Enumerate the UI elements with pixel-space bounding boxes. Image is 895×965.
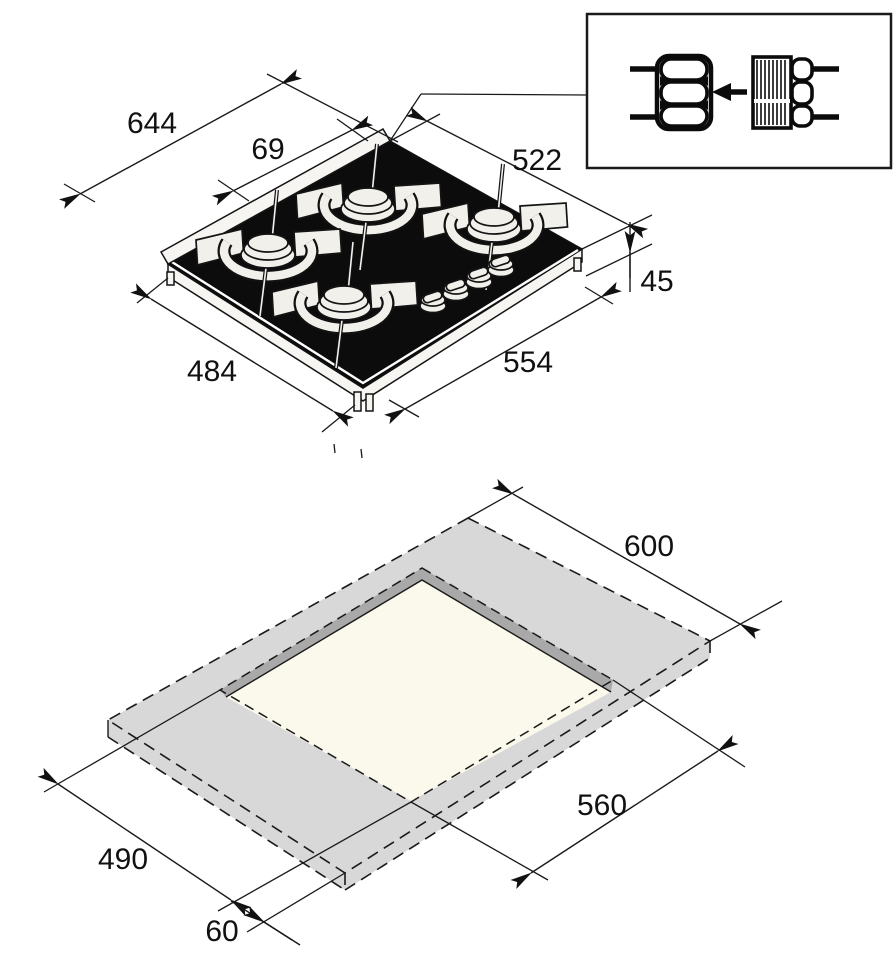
dim-label-overall-width: 644	[127, 107, 177, 140]
dim-label-height: 45	[640, 265, 673, 298]
dim-label-depth-left: 484	[187, 355, 237, 388]
installation-diagram-page: 644 69 522 45 554 484	[0, 0, 895, 965]
hob-foot	[574, 258, 581, 271]
worktop-cutout-view	[108, 518, 710, 890]
dim-label-depth-right: 554	[503, 346, 553, 379]
hob-foot	[354, 392, 361, 411]
dim-label-width: 522	[512, 144, 562, 177]
installation-diagram: 644 69 522 45 554 484	[0, 0, 895, 965]
dim-label-worktop-width: 600	[624, 530, 674, 563]
hob-foot	[366, 394, 373, 411]
leader-line	[390, 94, 421, 141]
dim-label-front-clearance: 60	[205, 915, 238, 948]
dim-label-connection-offset: 69	[251, 133, 284, 166]
gas-connection-inset	[587, 14, 891, 168]
dim-label-cutout-depth: 490	[98, 843, 148, 876]
dim-label-cutout-width: 560	[577, 789, 627, 822]
leader-line	[421, 94, 587, 95]
